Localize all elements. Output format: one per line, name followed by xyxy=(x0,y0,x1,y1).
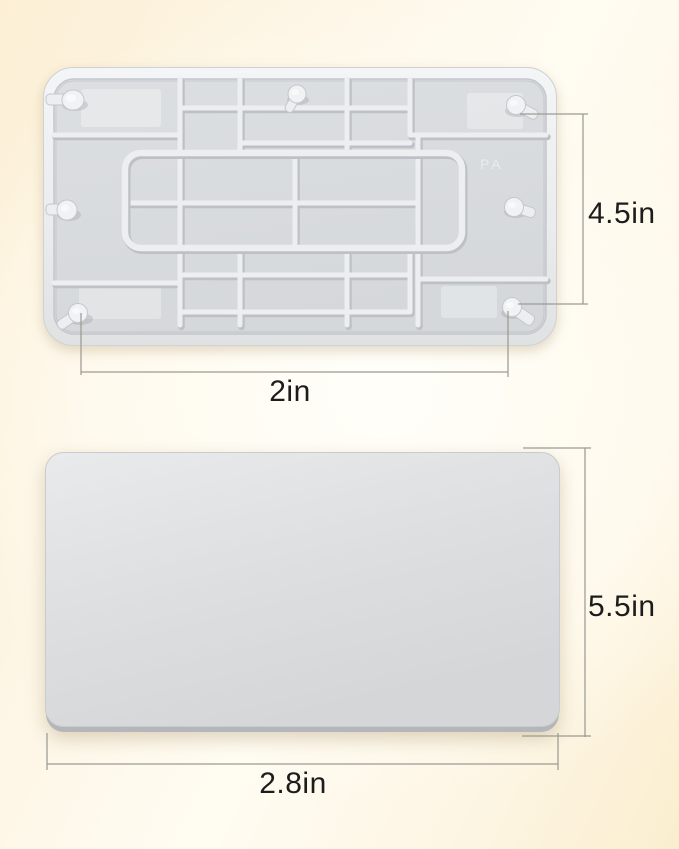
front-plate-face xyxy=(46,453,560,727)
wall-plate-front-view xyxy=(45,452,560,733)
back-width-dimension-label: 2in xyxy=(240,377,340,407)
front-height-dimension-label: 5.5in xyxy=(588,592,656,622)
front-width-dimension-label: 2.8in xyxy=(243,769,343,799)
back-height-dimension-label: 4.5in xyxy=(588,199,656,229)
front-width-dimension-lines xyxy=(47,733,558,770)
product-dimension-diagram: PA xyxy=(0,0,679,849)
mold-mark-text: PA xyxy=(480,156,504,172)
wall-plate-back-view: PA xyxy=(43,67,557,346)
